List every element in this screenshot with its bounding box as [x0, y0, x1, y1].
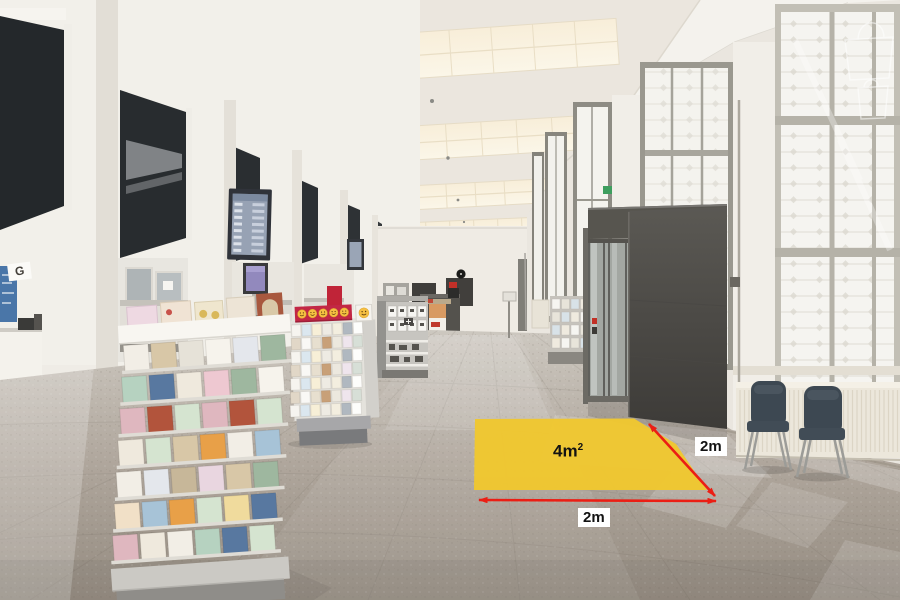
hall-photo: 4m2 2m 2m G — [0, 0, 900, 600]
smiley-tile-icon — [359, 308, 369, 318]
area-label: 4m2 — [553, 439, 583, 461]
queue-display-screen — [227, 188, 272, 260]
clerestory-window-4 — [300, 180, 318, 264]
window-large — [775, 4, 900, 394]
clerestory-window-1 — [0, 16, 64, 230]
dimension-arrow-width — [479, 500, 716, 501]
exit-sign-icon — [603, 186, 613, 194]
glass-doors — [588, 239, 628, 402]
vestibule — [583, 204, 727, 448]
side-dimension-label: 2m — [695, 437, 727, 456]
scene — [0, 0, 900, 600]
small-radiator — [532, 300, 549, 328]
card-rack-emoji — [286, 303, 381, 449]
departure-screen — [347, 239, 364, 270]
counter-letter-sign: G — [7, 262, 32, 282]
shelf-gondola — [377, 296, 428, 378]
bottom-dimension-label: 2m — [578, 508, 610, 527]
